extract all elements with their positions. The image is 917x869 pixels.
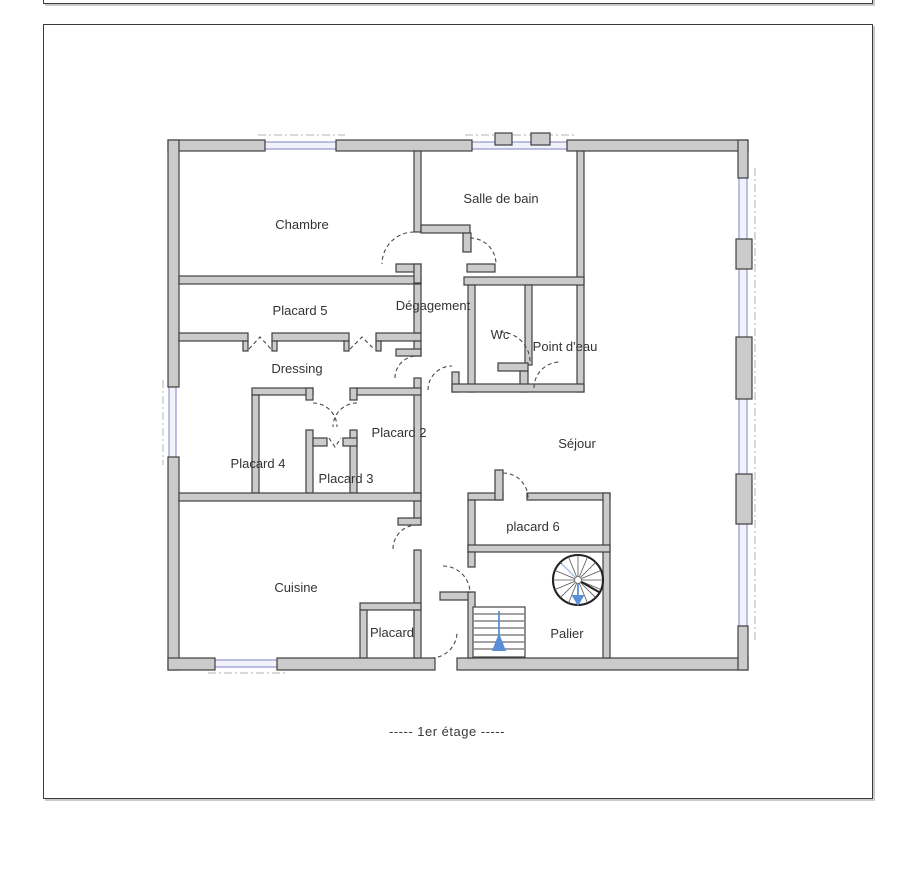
spiral-staircase-icon [553, 555, 603, 606]
room-label-cuisine: Cuisine [274, 580, 317, 595]
room-label-point-d-eau: Point d'eau [533, 339, 598, 354]
floor-caption: ----- 1er étage ----- [389, 724, 505, 739]
room-label-degagement: Dégagement [396, 298, 471, 313]
room-label-salle-de-bain: Salle de bain [463, 191, 538, 206]
straight-staircase-icon [473, 607, 525, 657]
room-label-dressing: Dressing [271, 361, 322, 376]
room-label-placard-3: Placard 3 [319, 471, 374, 486]
room-label-placard-5: Placard 5 [273, 303, 328, 318]
room-label-chambre: Chambre [275, 217, 328, 232]
room-label-placard: Placard [370, 625, 414, 640]
floor-plan: Chambre Salle de bain Placard 5 Dégageme… [0, 0, 917, 869]
room-label-wc: Wc [491, 327, 510, 342]
room-label-placard-4: Placard 4 [231, 456, 286, 471]
room-label-sejour: Séjour [558, 436, 596, 451]
room-label-placard-6: placard 6 [506, 519, 559, 534]
room-label-palier: Palier [550, 626, 584, 641]
screenshot-page: Chambre Salle de bain Placard 5 Dégageme… [0, 0, 917, 869]
interior-walls [179, 151, 610, 658]
room-label-placard-2: Placard 2 [372, 425, 427, 440]
